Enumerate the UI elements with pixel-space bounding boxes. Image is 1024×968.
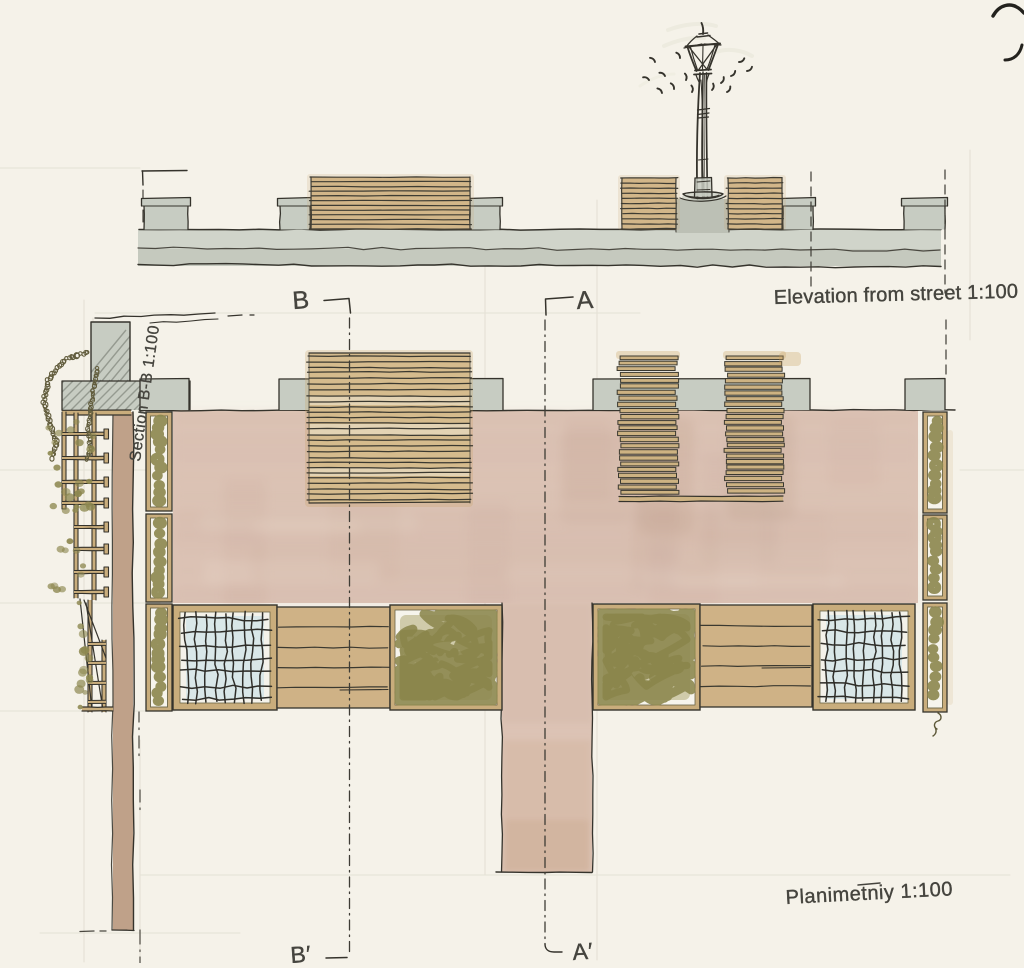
svg-text:A′: A′: [572, 938, 594, 963]
svg-text:B′: B′: [290, 941, 312, 963]
svg-text:A: A: [575, 286, 594, 315]
svg-text:B: B: [291, 286, 310, 315]
